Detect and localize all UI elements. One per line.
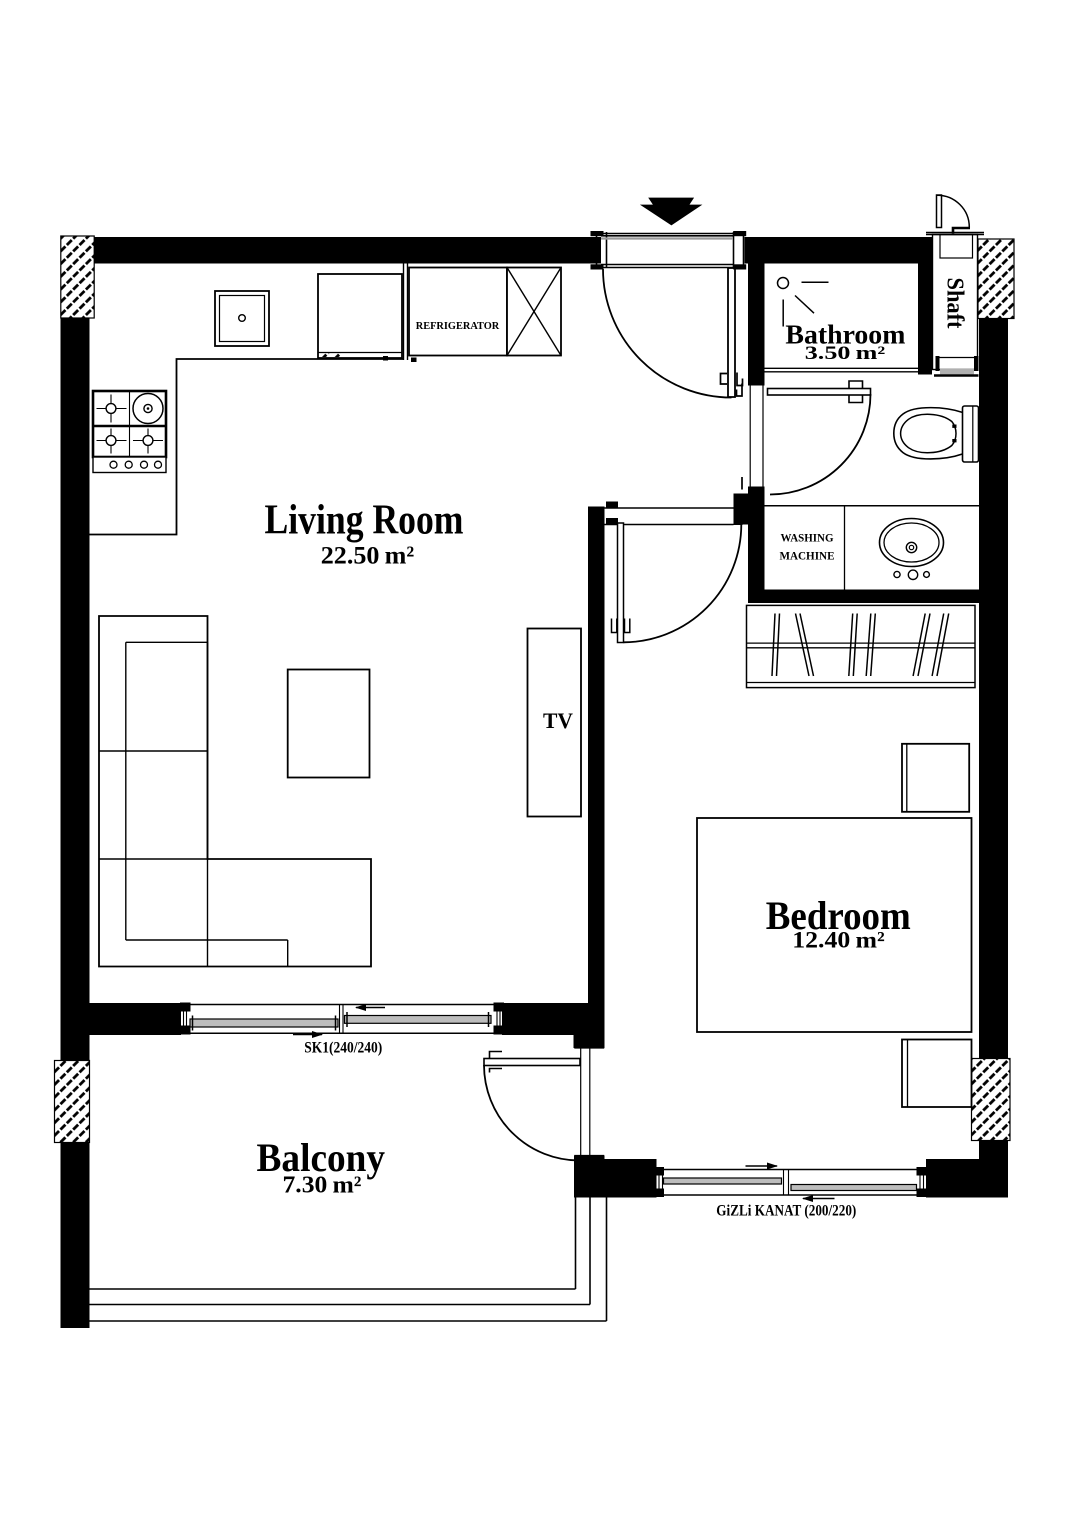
svg-text:GiZLi KANAT (200/220): GiZLi KANAT (200/220) (716, 1203, 856, 1220)
svg-text:REFRIGERATOR: REFRIGERATOR (416, 321, 500, 332)
svg-text:WASHING: WASHING (781, 530, 834, 544)
svg-text:3.50 m²: 3.50 m² (805, 343, 886, 364)
svg-text:SK1(240/240): SK1(240/240) (304, 1039, 382, 1056)
svg-text:Living Room: Living Room (265, 498, 464, 544)
svg-text:Shaft: Shaft (942, 278, 968, 329)
svg-text:7.30 m²: 7.30 m² (283, 1173, 362, 1199)
svg-text:TV: TV (543, 708, 573, 733)
svg-text:12.40 m²: 12.40 m² (792, 928, 885, 953)
svg-text:22.50 m²: 22.50 m² (321, 543, 415, 570)
svg-text:MACHINE: MACHINE (780, 548, 835, 562)
